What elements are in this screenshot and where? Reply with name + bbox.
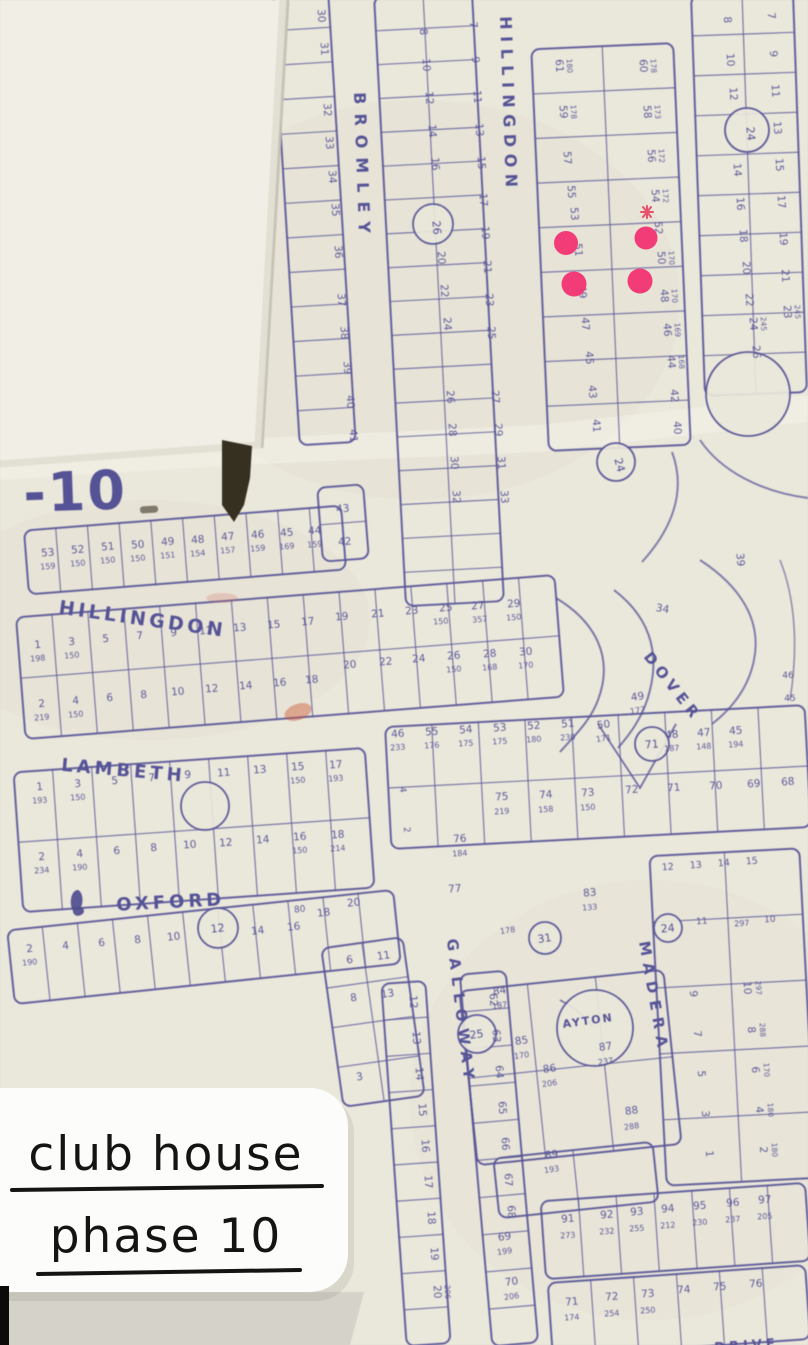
plot-number: 23 [781,305,794,319]
plot-number: 297 [754,980,764,995]
plot-number: 86 [542,1062,557,1076]
plot-number: 47 [579,317,592,331]
plot-number: 39 [341,361,354,375]
plot-number: 31 [495,456,508,470]
circled-plot-number: 26 [429,220,443,235]
plot-number: 13 [771,121,784,135]
plot-number: 53 [568,207,581,221]
plot-number: 288 [758,1022,768,1037]
plot-number: 42 [338,536,352,549]
plot-number: 80 [294,904,307,915]
plot-number: 219 [494,806,510,816]
plot-number: 21 [481,260,494,274]
plot-number: 28 [446,423,459,437]
plot-number: 193 [328,773,344,783]
plot-number: 4 [753,1106,765,1114]
plot-number: 2 [757,1146,769,1153]
plot-number: 8 [745,1026,757,1033]
plot-number: 18 [316,906,331,919]
plot-number: 4 [72,695,80,708]
plot-number: 13 [473,123,486,137]
plot-number: 62 [487,993,500,1007]
cul-de-sac-circle [706,352,790,436]
plot-number: 31 [318,42,331,56]
plot-number: 205 [757,1211,773,1221]
plot-number: 11 [769,84,782,98]
plot-number: 16 [293,831,307,844]
plot-number: 91 [561,1213,575,1226]
plot-number: 273 [560,1230,576,1240]
plot-number: 193 [32,795,48,805]
plot-number: 72 [625,784,639,797]
plot-number: 24 [441,317,454,331]
plot-number: 1 [34,639,42,651]
plot-number: 2 [26,943,34,956]
phase-10-fragment: -10 [22,458,128,525]
plot-number: 54 [459,724,473,737]
plot-number: 94 [661,1203,675,1216]
plot-number: 14 [256,834,270,847]
plot-number: 180 [526,734,542,744]
plot-number: 75 [713,1281,727,1294]
plot-number: 23 [483,293,496,307]
plot-number: 49 [161,536,175,549]
plot-number: 20 [343,659,357,672]
plot-number: 57 [561,151,574,165]
plot-number: 237 [725,1214,741,1224]
plot-number: 92 [600,1209,614,1222]
plot-number: 10 [171,686,185,699]
plot-number: 357 [472,614,488,624]
plot-number: 54 [649,189,662,203]
plot-number: 72 [605,1291,619,1304]
plot-number: 150 [70,792,86,802]
plot-number: 14 [717,858,730,870]
plot-number: 18 [305,674,319,687]
plot-number: 51 [101,541,115,554]
plot-number: 6 [749,1066,761,1074]
plot-number: 41 [590,419,603,433]
plot-number: 18 [331,829,345,842]
plot-number: 176 [424,740,440,750]
plot-number: 8 [417,28,429,35]
plot-number: 18 [737,229,750,243]
plot-number: 194 [728,739,744,749]
plot-number: 10 [764,915,776,926]
plot-number: 30 [315,9,328,23]
pink-dot-marker [635,227,658,250]
plot-number: 30 [448,456,461,470]
plot-number: 52 [527,720,541,733]
plot-number: 172 [657,148,667,163]
plot-number: 1 [36,781,44,793]
plot-number: 22 [379,656,393,669]
plot-number: 48 [665,729,679,742]
plot-number: 67 [502,1173,515,1187]
plot-number: 32 [450,490,463,504]
plot-number: 44 [308,524,323,537]
plot-number: 11 [217,767,231,780]
plot-number: 13 [410,1031,423,1045]
plot-number: 190 [22,957,38,968]
plot-number: 74 [677,1284,691,1297]
plot-number: 45 [729,725,743,738]
plot-number: 53 [493,722,507,735]
plot-number: 255 [629,1223,645,1233]
plot-number: 27 [489,390,502,404]
plot-number: 26 [750,345,763,359]
plot-number: 33 [323,136,336,150]
plot-number: 172 [661,188,671,203]
plot-number: 7 [691,1030,703,1037]
plot-number: 25 [439,602,453,615]
plot-number: 214 [330,843,346,853]
plot-number: 50 [655,251,668,265]
plot-number: 245 [759,316,769,331]
plot-number: 150 [290,775,306,785]
plot-number: 96 [726,1197,740,1210]
plot-number: 12 [727,87,740,101]
plot-number: 20 [435,251,448,265]
overlay-line2: phase 10 [50,1209,283,1264]
plot-number: 73 [641,1288,655,1301]
plot-number: 11 [696,917,708,928]
plot-number: 74 [539,789,553,802]
plot-number: 8 [140,689,148,701]
plot-number: 178 [649,58,659,73]
plot-number: 180 [766,1102,776,1117]
plot-number: 8 [134,934,142,947]
plot-number: 28 [483,648,497,661]
plot-number: 29 [507,598,521,611]
plot-number: 41 [347,429,360,443]
plot-number: 38 [338,326,351,340]
plot-number: 14 [239,679,254,692]
plot-number: 150 [433,616,449,626]
plot-number: 46 [782,671,794,681]
plot-number: 168 [482,662,498,672]
plot-number: 17 [301,616,315,629]
plot-number: 71 [565,1296,579,1309]
plot-number: 150 [580,802,596,812]
plot-number: 21 [371,608,385,621]
plot-number: 64 [493,1065,506,1079]
plot-number: 170 [670,288,680,303]
plot-number: 93 [630,1206,644,1219]
plot-number: 20 [740,261,753,275]
plot-number: 5 [695,1070,707,1077]
plot-number: 187 [664,743,680,753]
plot-number: 4 [76,848,84,860]
plot-number: 97 [758,1194,772,1207]
plot-number: 48 [658,289,671,303]
plot-number: 154 [190,548,206,558]
plot-number: 43 [586,385,599,399]
cul-de-sac-circle [181,782,229,830]
plot-number: 150 [70,558,86,568]
plot-number: 53 [41,547,55,560]
plot-number: 17 [329,759,343,772]
plot-number: 15 [291,761,305,774]
plot-number: 11 [471,90,484,104]
plot-number: 48 [191,534,205,547]
plot-number: 6 [113,845,121,857]
plot-number: 12 [407,995,420,1009]
plot-number: 10 [420,58,433,72]
plot-number: 36 [332,245,345,259]
plot-number: 10 [724,53,737,67]
plot-number: 60 [637,59,650,73]
plot-number: 16 [429,157,442,171]
plot-number: 47 [697,727,711,740]
plot-number: 42 [668,389,681,403]
plot-number: 10 [183,839,197,852]
plot-number: 250 [640,1305,656,1315]
plot-number: 21 [779,269,792,283]
plot-number: 18 [425,1211,438,1225]
plot-number: 133 [582,902,598,912]
plot-number: 7 [467,21,479,28]
plot-number: 12 [205,683,219,696]
plot-number: 87 [598,1040,613,1054]
plot-number: 10 [741,981,754,995]
plot-number: 150 [292,845,308,855]
circled-plot-number: 71 [644,738,659,752]
plot-number: 15 [475,156,488,170]
plot-number: 232 [599,1226,615,1236]
plot-number: 168 [677,354,687,369]
plot-number: 2 [38,698,46,710]
plot-number: 170 [667,250,677,265]
plot-number: 40 [671,421,684,435]
red-star-mark [641,206,653,218]
plot-number: 159 [40,561,56,571]
plot-number: 159 [307,539,323,549]
plot-number: 55 [425,726,439,739]
plot-number: 68 [781,776,795,789]
plot-number: 51 [561,718,575,731]
plot-number: 6 [106,692,114,705]
plot-number: 14 [426,124,439,138]
plot-number: 83 [583,886,597,899]
plot-number: 11 [376,949,391,963]
plot-number: 16 [419,1139,432,1153]
plot-number: 150 [100,555,116,565]
plot-number: 32 [321,103,334,117]
plot-number: 16 [734,197,747,211]
plot-number: 15 [416,1103,429,1117]
circled-plot-number: 31 [537,931,553,946]
plot-number: 2 [38,851,46,863]
plot-number: 14 [250,924,265,937]
plot-number: 77 [448,883,462,896]
plot-number: 9 [687,990,699,997]
plot-number: 12 [661,862,674,874]
plot-number: 212 [660,1220,676,1230]
plot-number: 49 [630,690,645,704]
folded-blank-corner [0,0,288,468]
plot-number: 230 [560,732,576,742]
plot-number: 46 [251,528,266,541]
map-photo: 2624241271312524 30313233343536373839404… [0,0,808,1345]
edge-black-bar [0,1286,9,1345]
plot-number: 169 [279,541,295,551]
plot-number: 150 [446,664,462,674]
plot-number: 15 [267,619,281,632]
plot-number: 150 [68,709,84,719]
tear-mark [140,505,158,513]
plot-number: 151 [160,550,176,560]
plot-number: 24 [747,317,760,331]
plot-number: 254 [604,1308,620,1318]
plot-number: 43 [336,503,350,516]
plot-number: 34 [326,170,339,184]
pink-dot-marker [562,272,587,297]
plot-number: 12 [423,91,436,105]
plot-number: 69 [747,778,761,791]
plot-number: 3 [74,778,82,790]
plot-number: 10 [166,930,181,943]
plot-number: 56 [645,149,658,163]
circled-plot-number: 24 [660,921,675,935]
plot-number: 70 [709,780,723,793]
plot-number: 85 [514,1034,529,1048]
plot-number: 61 [553,59,566,73]
plot-number: 174 [564,1312,580,1322]
plot-number: 173 [653,104,663,119]
plot-number: 73 [581,787,595,800]
plot-number: 170 [762,1062,772,1077]
plot-number: 15 [745,856,758,868]
plot-number: 184 [452,848,468,858]
plot-number: 26 [447,649,462,662]
plot-number: 76 [749,1278,763,1291]
plot-number: 66 [499,1137,512,1151]
plot-number: 150 [506,612,522,622]
plot-number: 71 [667,782,681,795]
plot-number: 190 [72,862,88,872]
plot-number: 19 [777,232,790,246]
plot-number: 20 [346,896,361,909]
plot-number: 25 [485,326,498,340]
plot-number: 16 [273,676,288,689]
plot-number: 46 [661,323,674,337]
plot-number: 45 [784,694,795,704]
plot-number: 40 [344,395,357,409]
plot-number: 88 [624,1104,639,1118]
plot-number: 169 [673,322,683,337]
plot-number: 44 [665,355,678,369]
plot-number: 7 [136,630,144,642]
plot-number: 9 [767,50,779,57]
plot-number: 75 [495,791,509,804]
plot-number: 230 [692,1217,708,1227]
plot-number: 158 [538,804,554,814]
plot-number: 23 [405,605,419,618]
plot-number: 180 [770,1142,780,1157]
plot-number: 180 [565,58,575,73]
plot-number: 45 [280,527,294,540]
plot-number: 1 [703,1150,715,1157]
plot-number: 170 [518,660,534,670]
plot-number: 9 [469,56,481,63]
plot-number: 37 [335,293,348,307]
plot-number: 19 [428,1247,441,1261]
plot-number: 175 [458,738,474,748]
plot-number: 159 [250,543,266,553]
plot-number: 8 [721,16,733,23]
overlay-line1: club house [28,1127,303,1182]
plot-number: 3 [699,1110,711,1117]
circled-plot-number: 12 [210,921,225,935]
plot-number: 13 [689,860,702,872]
plot-number: 35 [329,203,342,217]
plot-number: 63 [490,1029,503,1043]
plot-number: 70 [504,1275,519,1289]
plot-number: 17 [775,195,788,209]
plot-number: 17 [422,1175,435,1189]
plot-number: 30 [519,646,533,659]
plot-number: 19 [479,226,492,240]
plot-number: 8 [150,842,158,854]
plot-number: 178 [569,104,579,119]
plot-number: 7 [765,12,777,19]
plot-number: 175 [492,736,508,746]
plot-number: 157 [220,545,236,555]
plot-number: 76 [453,833,467,846]
plot-number: 45 [583,351,596,365]
plot-number: 234 [34,865,50,875]
plot-number: 245 [793,304,803,319]
plot-number: 47 [221,531,235,544]
plot-number: 13 [380,987,395,1001]
plot-number: 5 [102,633,110,645]
plot-number: 2 [401,827,411,834]
circled-plot-number: 24 [743,126,757,141]
plot-number: 150 [64,650,80,660]
plot-number: 148 [696,741,712,751]
pink-dot-marker [554,231,578,255]
plot-number: 95 [693,1200,707,1213]
plot-number: 50 [596,718,611,732]
plot-number: 219 [34,712,50,722]
plot-number: 24 [412,652,427,665]
plot-number: 19 [335,611,349,624]
plot-number: 26 [444,390,457,404]
plot-number: 15 [773,158,786,172]
plot-number: 27 [471,600,485,613]
plot-number: 68 [505,1205,518,1219]
plot-number: 50 [131,539,145,552]
plot-number: 20 [431,1285,444,1299]
plot-number: 13 [253,764,267,777]
plot-number: 4 [397,787,407,794]
plot-number: 3 [68,636,76,648]
plot-number: 52 [71,544,85,557]
plot-number: 233 [390,742,406,752]
plot-number: 198 [30,653,46,663]
plot-number: 34 [655,602,671,616]
plot-number: 17 [477,193,490,207]
plot-number: 58 [641,105,654,119]
plot-number: 39 [733,553,746,567]
plot-number: 59 [557,105,570,119]
pink-dot-marker [628,269,653,294]
plot-number: 69 [497,1230,512,1244]
plot-number: 14 [413,1067,426,1081]
pink-smear [206,593,238,603]
plot-number: 29 [492,423,505,437]
